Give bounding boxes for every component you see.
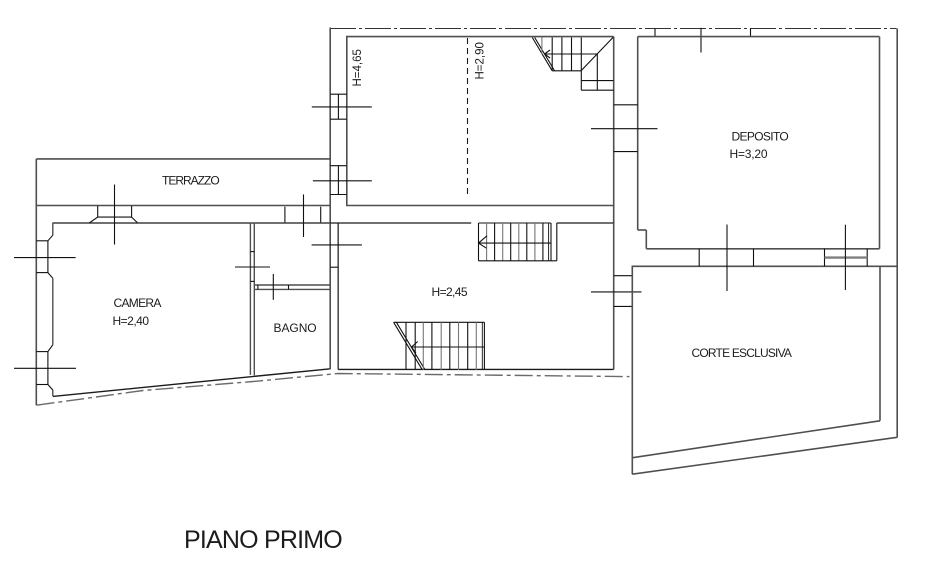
svg-text:H=4,65: H=4,65	[352, 49, 364, 86]
svg-text:DEPOSITO: DEPOSITO	[732, 130, 789, 144]
svg-text:TERRAZZO: TERRAZZO	[162, 174, 219, 188]
svg-text:H=2,45: H=2,45	[432, 285, 468, 299]
svg-text:PIANO PRIMO: PIANO PRIMO	[184, 526, 342, 554]
svg-text:CORTE ESCLUSIVA: CORTE ESCLUSIVA	[692, 346, 792, 360]
svg-text:H=3,20: H=3,20	[730, 147, 768, 161]
svg-text:CAMERA: CAMERA	[114, 296, 162, 310]
svg-text:BAGNO: BAGNO	[274, 321, 317, 335]
svg-text:H=2,90: H=2,90	[475, 42, 487, 79]
svg-text:H=2,40: H=2,40	[113, 314, 150, 328]
